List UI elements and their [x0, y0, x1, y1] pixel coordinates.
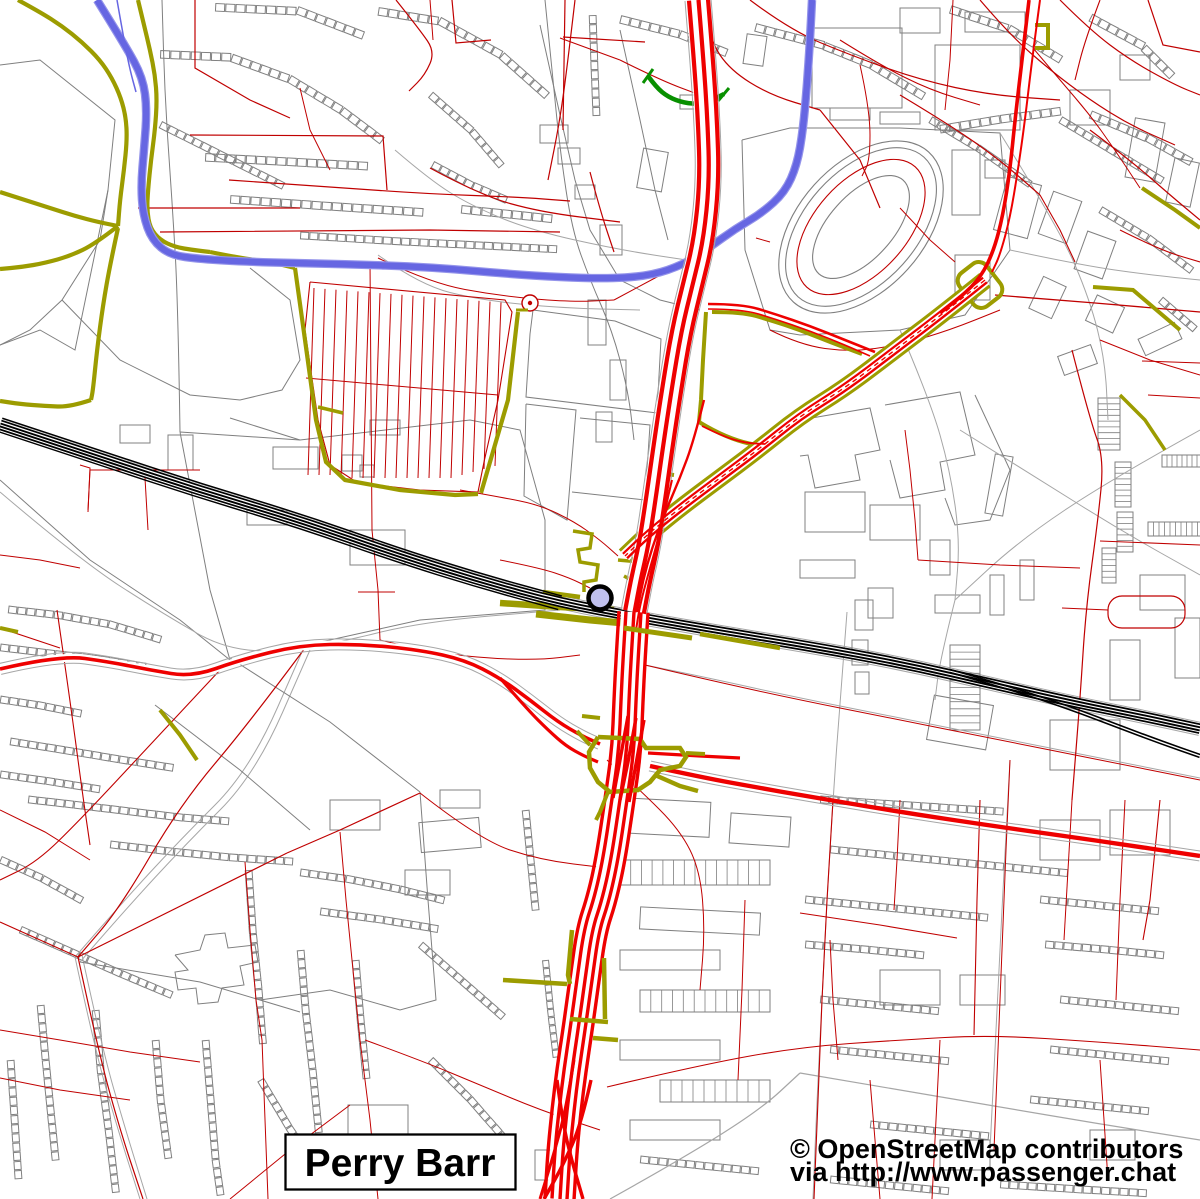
svg-text:Perry Barr: Perry Barr: [305, 1142, 496, 1185]
svg-text:via http://www.passenger.chat: via http://www.passenger.chat: [790, 1157, 1176, 1187]
